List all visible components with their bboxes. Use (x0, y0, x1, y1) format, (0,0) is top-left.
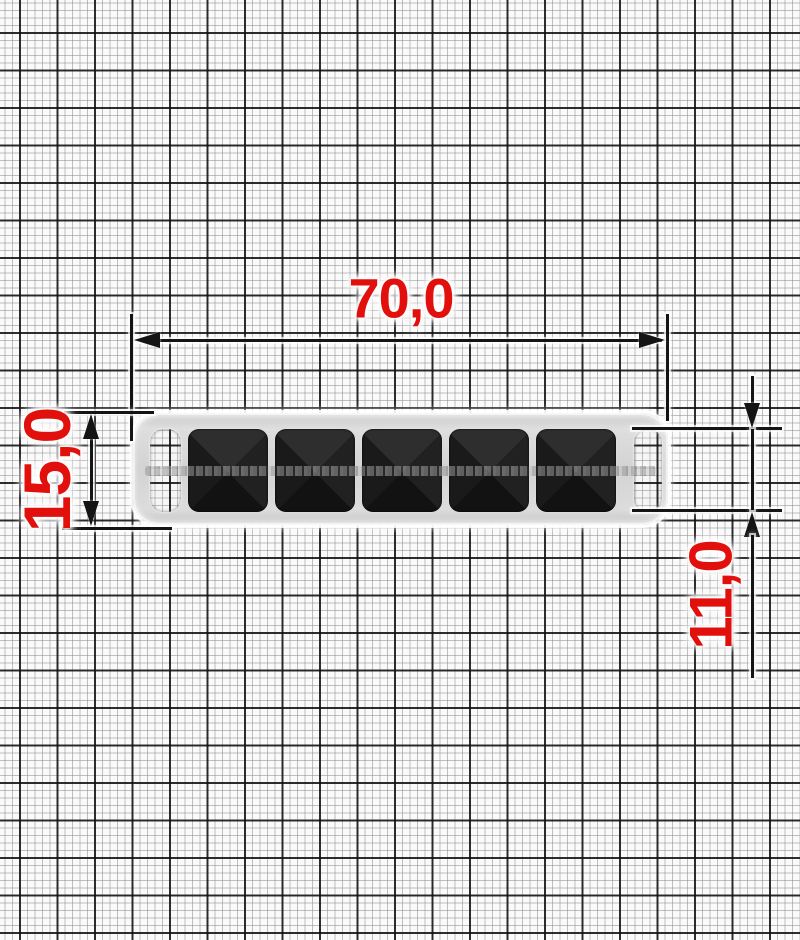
inner-height-arrow-tail-top (751, 376, 754, 405)
width-extension-line-left (130, 314, 133, 441)
arrowhead-down-icon (83, 501, 99, 526)
technical-drawing-canvas: 70,0 15,0 11,0 (0, 0, 800, 940)
width-dim-label: 70,0 (349, 266, 454, 331)
inner-height-dimension-line (751, 429, 754, 510)
height-dimension-line (90, 434, 93, 508)
mold-seam-stripe (145, 466, 656, 476)
inner-height-dim-label: 11,0 (677, 540, 746, 649)
arrowhead-left-icon (134, 332, 160, 348)
arrowhead-up-icon (83, 414, 99, 439)
height-dim-label: 15,0 (9, 408, 85, 532)
buckle-frame (133, 413, 668, 525)
width-extension-line-right (666, 314, 669, 421)
arrowhead-down-icon (744, 403, 760, 428)
arrowhead-up-icon (744, 512, 760, 537)
width-dimension-line (140, 339, 662, 342)
arrowhead-right-icon (639, 332, 665, 348)
inner-height-arrow-tail-bottom (751, 535, 754, 678)
